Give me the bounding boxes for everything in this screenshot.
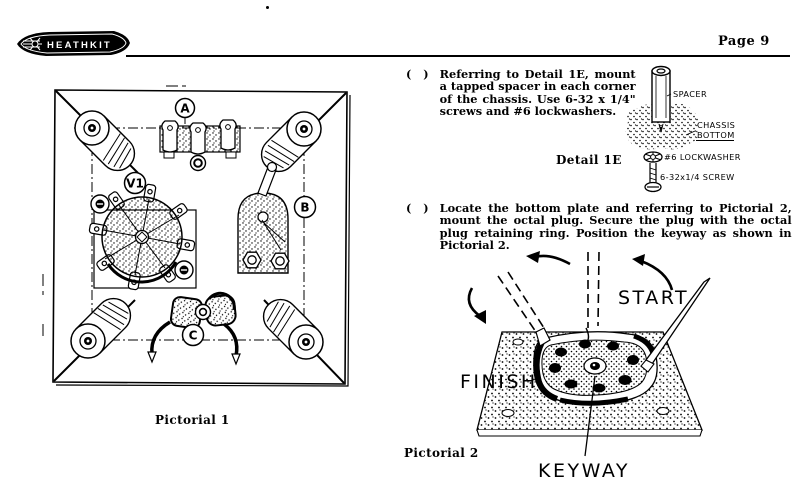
heathkit-logo: HEATHKIT xyxy=(14,28,134,60)
logo-brand-text: HEATHKIT xyxy=(47,40,112,51)
pictorial-1-caption: Pictorial 1 xyxy=(155,413,230,427)
detail-1e-caption: Detail 1E xyxy=(556,153,622,167)
screw-label: 6-32x1/4 SCREW xyxy=(660,172,735,182)
spacer-cylinder xyxy=(652,67,670,133)
page-number: Page 9 xyxy=(718,34,770,49)
instruction-1-checkbox: ( ) xyxy=(406,68,433,117)
callout-b-label: B xyxy=(300,201,309,215)
pictorial-1-diagram: A xyxy=(38,84,360,396)
detail-1e-diagram: SPACER CHASSIS BOTTOM #6 LOCKWASHER 6-32… xyxy=(618,58,800,200)
instruction-step-2: ( ) Locate the bottom plate and referrin… xyxy=(406,202,796,251)
instruction-2-text: Locate the bottom plate and referring to… xyxy=(440,202,792,251)
keyway-label: KEYWAY xyxy=(538,460,630,482)
spacer-label: SPACER xyxy=(673,89,707,99)
pictorial-2-diagram: START FINISH KEYWAY xyxy=(438,248,778,488)
manual-page: HEATHKIT Page 9 xyxy=(0,0,800,492)
header-rule xyxy=(126,55,790,57)
lockwasher-icon xyxy=(644,152,662,163)
finish-label: FINISH xyxy=(460,371,538,393)
scan-artifact-dot xyxy=(266,6,269,9)
chassis-bottom-label-1: CHASSIS xyxy=(697,120,735,130)
instruction-step-1: ( ) Referring to Detail 1E, mount a tapp… xyxy=(406,68,642,117)
tool-rod-ghosts xyxy=(498,252,599,332)
callout-a-label: A xyxy=(180,102,190,116)
lockwasher-label: #6 LOCKWASHER xyxy=(664,152,741,162)
start-label: START xyxy=(618,287,689,309)
screw-icon xyxy=(645,163,661,192)
octal-plug xyxy=(534,332,657,405)
callout-c-label: C xyxy=(189,329,198,343)
callout-v1-label: V1 xyxy=(126,177,144,191)
chassis-bottom-label-2: BOTTOM xyxy=(697,130,735,140)
instruction-1-text: Referring to Detail 1E, mount a tapped s… xyxy=(440,68,636,117)
instruction-2-checkbox: ( ) xyxy=(406,202,433,251)
pictorial-2-caption: Pictorial 2 xyxy=(404,446,479,460)
